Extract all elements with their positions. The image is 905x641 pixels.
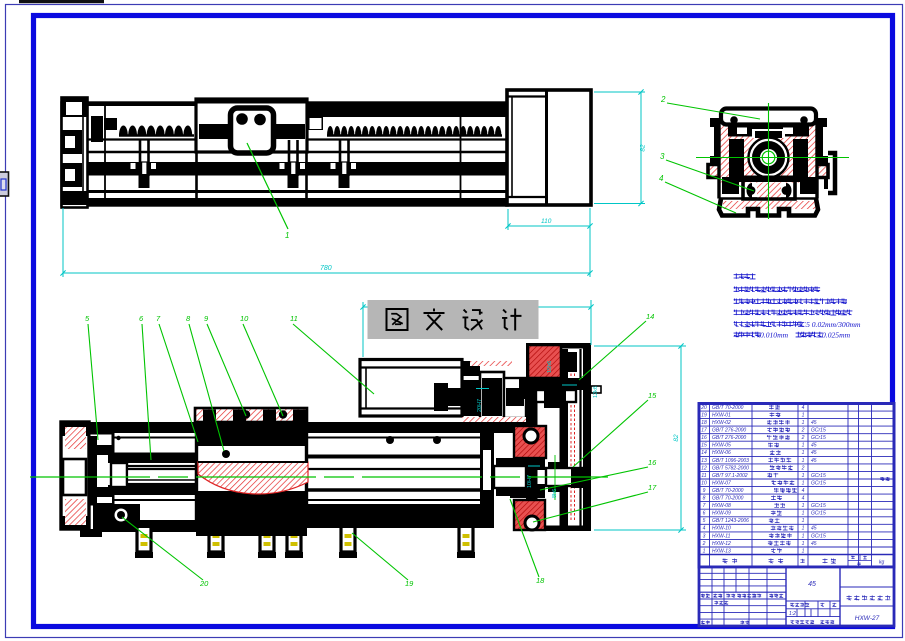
svg-text:5: 5 — [703, 518, 706, 524]
svg-text:6: 6 — [703, 511, 706, 517]
svg-text:GCr15: GCr15 — [811, 435, 826, 441]
svg-text:45: 45 — [811, 458, 817, 464]
svg-text:HXW-09: HXW-09 — [712, 511, 731, 517]
svg-text:1: 1 — [802, 473, 805, 479]
svg-text:HXW-02: HXW-02 — [712, 420, 731, 426]
svg-text:20: 20 — [700, 405, 707, 411]
svg-text:GCr15: GCr15 — [811, 511, 826, 517]
svg-text:GCr15: GCr15 — [811, 533, 826, 539]
svg-text:45: 45 — [811, 541, 817, 547]
svg-text:19: 19 — [405, 579, 414, 588]
svg-text:HXW-05: HXW-05 — [712, 443, 731, 449]
svg-text:82: 82 — [640, 144, 647, 152]
svg-text:1: 1 — [802, 480, 805, 486]
svg-text:15h6: 15h6 — [547, 361, 553, 373]
svg-text:GB/T 5782-2000: GB/T 5782-2000 — [712, 465, 749, 471]
svg-text:0.025mm: 0.025mm — [822, 331, 851, 340]
svg-text:GB/T 1243-2006: GB/T 1243-2006 — [712, 518, 749, 524]
svg-text:15: 15 — [648, 391, 657, 400]
svg-text:1: 1 — [802, 511, 805, 517]
svg-text:HXW-01: HXW-01 — [712, 413, 731, 419]
svg-text:1: 1 — [802, 518, 805, 524]
svg-text:2: 2 — [801, 428, 805, 434]
svg-text:GB/T 70-2000: GB/T 70-2000 — [712, 488, 744, 494]
svg-text:9: 9 — [703, 488, 706, 494]
svg-text:110: 110 — [541, 218, 552, 225]
svg-text:GCr15: GCr15 — [811, 480, 826, 486]
svg-text:780: 780 — [320, 265, 332, 272]
svg-text:HXW-27: HXW-27 — [855, 615, 880, 622]
svg-text:18: 18 — [536, 576, 545, 585]
svg-text:1: 1 — [802, 526, 805, 532]
svg-text:45: 45 — [811, 526, 817, 532]
svg-text:4: 4 — [802, 405, 805, 411]
svg-text:HXW-08: HXW-08 — [712, 503, 731, 509]
svg-text:HXW-10: HXW-10 — [712, 526, 731, 532]
svg-text:1: 1 — [802, 458, 805, 464]
svg-text:19: 19 — [701, 413, 707, 419]
svg-text:14: 14 — [646, 312, 654, 321]
svg-text:2: 2 — [660, 95, 666, 104]
svg-text:GB/T 97.1-2002: GB/T 97.1-2002 — [712, 473, 748, 479]
svg-text:GB/T 1096-2003: GB/T 1096-2003 — [712, 458, 749, 464]
svg-text:0.010mm: 0.010mm — [760, 331, 789, 340]
svg-text:2: 2 — [801, 435, 805, 441]
svg-text:C5 0.02mm/300mm: C5 0.02mm/300mm — [801, 320, 861, 329]
svg-text:1: 1 — [802, 443, 805, 449]
svg-text:8h6: 8h6 — [552, 489, 558, 498]
svg-text:3: 3 — [660, 152, 665, 161]
svg-text:GCr15: GCr15 — [811, 428, 826, 434]
svg-text:17: 17 — [701, 428, 707, 434]
svg-text:GB/T 70-2000: GB/T 70-2000 — [712, 496, 744, 502]
svg-text:1: 1 — [802, 533, 805, 539]
svg-text:11: 11 — [290, 314, 298, 323]
svg-text:12k6: 12k6 — [593, 386, 599, 398]
svg-text:16: 16 — [701, 435, 707, 441]
svg-text:10: 10 — [240, 314, 249, 323]
svg-text:1: 1 — [703, 548, 706, 554]
svg-text:HXW-06: HXW-06 — [712, 450, 731, 456]
svg-text:45: 45 — [811, 443, 817, 449]
svg-text:1: 1 — [285, 231, 289, 240]
svg-text:HXW-12: HXW-12 — [712, 541, 731, 547]
svg-text:GB/T 276-2000: GB/T 276-2000 — [712, 435, 746, 441]
svg-text:HXW-07: HXW-07 — [712, 480, 731, 486]
svg-text:45: 45 — [808, 581, 816, 588]
svg-text:GCr15: GCr15 — [811, 473, 826, 479]
svg-text:HXW-13: HXW-13 — [712, 548, 731, 554]
svg-text:10H7: 10H7 — [527, 475, 533, 488]
svg-text:7: 7 — [703, 503, 706, 509]
svg-text:12: 12 — [701, 465, 707, 471]
svg-text:HXW-11: HXW-11 — [712, 533, 731, 539]
svg-text:kg: kg — [879, 560, 885, 566]
svg-text:1: 1 — [802, 413, 805, 419]
svg-text:GCr15: GCr15 — [811, 503, 826, 509]
svg-text:4: 4 — [703, 526, 706, 532]
svg-text:1: 1 — [802, 541, 805, 547]
svg-text:45: 45 — [811, 450, 817, 456]
svg-text:45: 45 — [811, 420, 817, 426]
svg-text:20: 20 — [199, 579, 209, 588]
svg-text:GB/T 70-2000: GB/T 70-2000 — [712, 405, 744, 411]
svg-text:10: 10 — [701, 480, 707, 486]
svg-text:14: 14 — [701, 450, 707, 456]
svg-text:13: 13 — [701, 458, 707, 464]
svg-text:82: 82 — [673, 434, 680, 442]
svg-text:20H7: 20H7 — [477, 399, 483, 412]
svg-text:2: 2 — [702, 541, 706, 547]
svg-text:1:2: 1:2 — [789, 611, 796, 617]
svg-text:16: 16 — [648, 458, 657, 467]
svg-text:1: 1 — [802, 548, 805, 554]
svg-text:1: 1 — [802, 450, 805, 456]
svg-text:1: 1 — [802, 420, 805, 426]
svg-text:4: 4 — [802, 488, 805, 494]
svg-text:4: 4 — [802, 496, 805, 502]
svg-text:15: 15 — [701, 443, 707, 449]
svg-text:11: 11 — [701, 473, 706, 479]
svg-text:17: 17 — [648, 483, 657, 492]
svg-text:1: 1 — [802, 503, 805, 509]
svg-text:18: 18 — [701, 420, 707, 426]
svg-text:3: 3 — [703, 533, 706, 539]
svg-text:4: 4 — [659, 174, 664, 183]
svg-text:2: 2 — [801, 465, 805, 471]
svg-text:8: 8 — [703, 496, 706, 502]
svg-text:GB/T 276-2000: GB/T 276-2000 — [712, 428, 746, 434]
